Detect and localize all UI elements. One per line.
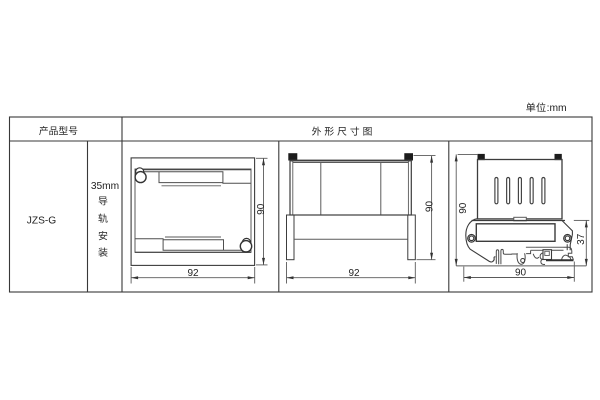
svg-text:92: 92 [187, 268, 199, 279]
svg-text:90: 90 [458, 202, 469, 214]
svg-text:JZS-G: JZS-G [27, 216, 57, 227]
svg-text:90: 90 [515, 268, 527, 279]
svg-text:92: 92 [348, 268, 360, 279]
svg-text:90: 90 [424, 201, 435, 213]
svg-text:37: 37 [576, 233, 587, 245]
svg-text:90: 90 [256, 203, 267, 215]
svg-text:35mm: 35mm [91, 181, 119, 192]
svg-text::mm: :mm [547, 103, 567, 114]
